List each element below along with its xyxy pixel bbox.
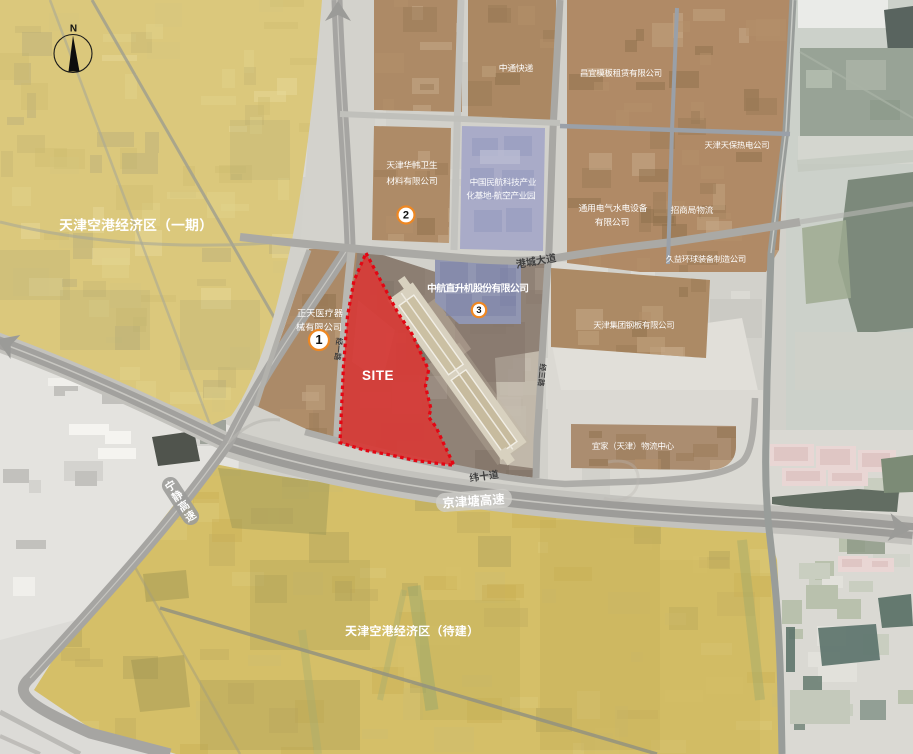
svg-text:2: 2 [403,210,409,222]
svg-text:1: 1 [315,332,322,347]
svg-text:N: N [70,24,77,35]
svg-text:SITE: SITE [362,368,394,383]
svg-text:3: 3 [476,305,481,315]
